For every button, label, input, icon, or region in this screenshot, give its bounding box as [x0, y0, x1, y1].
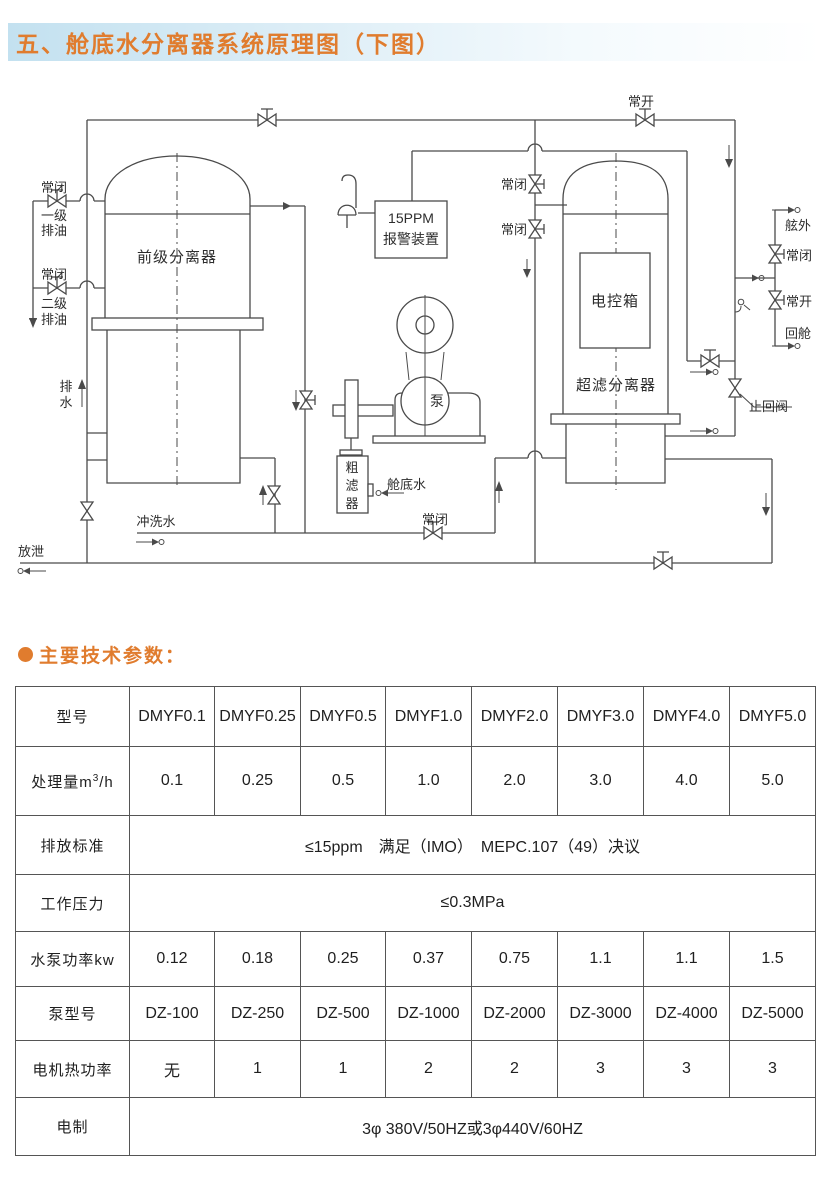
- schematic-svg: 常闭 一级 排油 常闭 二级 排油 前级分离器 排 水 冲洗水 放泄 15PPM…: [0, 78, 830, 610]
- label-no-top: 常开: [628, 94, 654, 109]
- spec-cell: DZ-5000: [730, 987, 816, 1041]
- label-outboard: 舷外: [785, 218, 811, 233]
- label-nc-bottom: 常闭: [422, 512, 448, 527]
- table-row-model: 型号 DMYF0.1 DMYF0.25 DMYF0.5 DMYF1.0 DMYF…: [16, 687, 816, 747]
- catalog-page: 五、舱底水分离器系统原理图（下图）: [0, 0, 830, 1185]
- spec-cell-merged: ≤15ppm 满足（IMO） MEPC.107（49）决议: [130, 816, 816, 875]
- spec-cell: DZ-1000: [386, 987, 472, 1041]
- spec-cell: DZ-3000: [558, 987, 644, 1041]
- spec-cell: 1.1: [644, 932, 730, 987]
- label-control-box: 电控箱: [591, 293, 639, 310]
- spec-cell: 3: [730, 1041, 816, 1098]
- label-alarm-line2: 报警装置: [383, 231, 439, 247]
- label-strainer-char2: 滤: [345, 478, 358, 493]
- label-nc-oil1: 常闭: [41, 180, 67, 195]
- section-title: 主要技术参数：: [39, 641, 186, 668]
- spec-cell: DZ-2000: [472, 987, 558, 1041]
- uf-separator-tank: [551, 153, 680, 490]
- label-no-right: 常开: [786, 294, 812, 309]
- spec-cell: DMYF0.1: [130, 687, 215, 747]
- spec-cell: 无: [130, 1041, 215, 1098]
- label-uf-separator: 超滤分离器: [576, 377, 656, 394]
- sampling-cock-head: [738, 299, 744, 305]
- spec-cell: DMYF0.5: [301, 687, 386, 747]
- spec-cell: 0.18: [215, 932, 301, 987]
- spec-cell: 0.1: [130, 747, 215, 816]
- label-strainer-char3: 器: [345, 496, 358, 511]
- spec-cell: 1: [301, 1041, 386, 1098]
- table-row-capacity: 处理量m3/h 0.1 0.25 0.5 1.0 2.0 3.0 4.0 5.0: [16, 747, 816, 816]
- spec-cell: 4.0: [644, 747, 730, 816]
- label-return-cabin: 回舱: [785, 326, 811, 341]
- spec-cell: 1.5: [730, 932, 816, 987]
- spec-cell: DZ-100: [130, 987, 215, 1041]
- sampling-cock-icon: [735, 305, 750, 312]
- label-strainer-char1: 粗: [345, 460, 358, 475]
- spec-cell: DMYF1.0: [386, 687, 472, 747]
- spec-cell: 1: [215, 1041, 301, 1098]
- label-oil1-line2: 排油: [41, 223, 67, 238]
- row-label: 工作压力: [16, 875, 130, 932]
- label-drain-line2: 水: [59, 395, 72, 410]
- row-label: 电制: [16, 1098, 130, 1156]
- table-row-motor-heat-power: 电机热功率 无 1 1 2 2 3 3 3: [16, 1041, 816, 1098]
- row-label: 处理量m3/h: [16, 747, 130, 816]
- spec-cell: 3: [558, 1041, 644, 1098]
- label-release: 放泄: [18, 544, 44, 559]
- spec-cell: 0.25: [301, 932, 386, 987]
- row-label: 水泵功率kw: [16, 932, 130, 987]
- label-oil1-line1: 一级: [41, 208, 67, 223]
- spec-cell: DMYF0.25: [215, 687, 301, 747]
- spec-cell: 0.5: [301, 747, 386, 816]
- spec-cell: 3.0: [558, 747, 644, 816]
- spec-cell-merged: ≤0.3MPa: [130, 875, 816, 932]
- spec-cell: 2.0: [472, 747, 558, 816]
- spec-cell: DZ-500: [301, 987, 386, 1041]
- spec-cell: DMYF5.0: [730, 687, 816, 747]
- label-oil2-line1: 二级: [41, 296, 67, 311]
- spec-cell: DZ-250: [215, 987, 301, 1041]
- label-alarm-line1: 15PPM: [388, 210, 434, 226]
- spec-cell: 0.75: [472, 932, 558, 987]
- table-row-pump-power: 水泵功率kw 0.12 0.18 0.25 0.37 0.75 1.1 1.1 …: [16, 932, 816, 987]
- label-flush-water: 冲洗水: [136, 514, 175, 529]
- label-bilge-water: 舱底水: [387, 477, 426, 492]
- spec-cell: DZ-4000: [644, 987, 730, 1041]
- label-nc-mid2: 常闭: [501, 222, 527, 237]
- row-label: 泵型号: [16, 987, 130, 1041]
- spec-cell: 1.0: [386, 747, 472, 816]
- label-oil2-line2: 排油: [41, 312, 67, 327]
- system-schematic: 常闭 一级 排油 常闭 二级 排油 前级分离器 排 水 冲洗水 放泄 15PPM…: [0, 78, 830, 610]
- label-nc-right: 常闭: [786, 248, 812, 263]
- label-nc-oil2: 常闭: [41, 267, 67, 282]
- label-drain-line1: 排: [59, 379, 72, 394]
- bullet-icon: [18, 647, 33, 662]
- spec-cell: 3: [644, 1041, 730, 1098]
- pre-separator-tank: [92, 153, 263, 486]
- spec-cell: DMYF4.0: [644, 687, 730, 747]
- spec-cell: 0.12: [130, 932, 215, 987]
- pump-unit: [373, 295, 485, 443]
- spec-cell: DMYF3.0: [558, 687, 644, 747]
- label-pump: 泵: [430, 393, 444, 409]
- section-heading: 主要技术参数：: [18, 641, 186, 668]
- spec-cell: 1.1: [558, 932, 644, 987]
- page-title: 五、舱底水分离器系统原理图（下图）: [8, 25, 441, 59]
- row-label: 电机热功率: [16, 1041, 130, 1098]
- table-row-discharge-standard: 排放标准 ≤15ppm 满足（IMO） MEPC.107（49）决议: [16, 816, 816, 875]
- row-label: 排放标准: [16, 816, 130, 875]
- label-pre-separator: 前级分离器: [137, 249, 217, 266]
- table-row-working-pressure: 工作压力 ≤0.3MPa: [16, 875, 816, 932]
- spec-cell: 0.25: [215, 747, 301, 816]
- table-row-pump-model: 泵型号 DZ-100 DZ-250 DZ-500 DZ-1000 DZ-2000…: [16, 987, 816, 1041]
- spec-cell-merged: 3φ 380V/50HZ或3φ440V/60HZ: [130, 1098, 816, 1156]
- spec-cell: 0.37: [386, 932, 472, 987]
- vent-funnel-icon: [338, 175, 356, 228]
- table-row-electric-system: 电制 3φ 380V/50HZ或3φ440V/60HZ: [16, 1098, 816, 1156]
- spec-cell: 5.0: [730, 747, 816, 816]
- title-band: 五、舱底水分离器系统原理图（下图）: [8, 23, 822, 61]
- spec-cell: DMYF2.0: [472, 687, 558, 747]
- spec-cell: 2: [472, 1041, 558, 1098]
- label-check-valve: 止回阀: [749, 399, 788, 414]
- row-label: 型号: [16, 687, 130, 747]
- specs-table: 型号 DMYF0.1 DMYF0.25 DMYF0.5 DMYF1.0 DMYF…: [15, 686, 816, 1156]
- label-nc-mid1: 常闭: [501, 177, 527, 192]
- spec-cell: 2: [386, 1041, 472, 1098]
